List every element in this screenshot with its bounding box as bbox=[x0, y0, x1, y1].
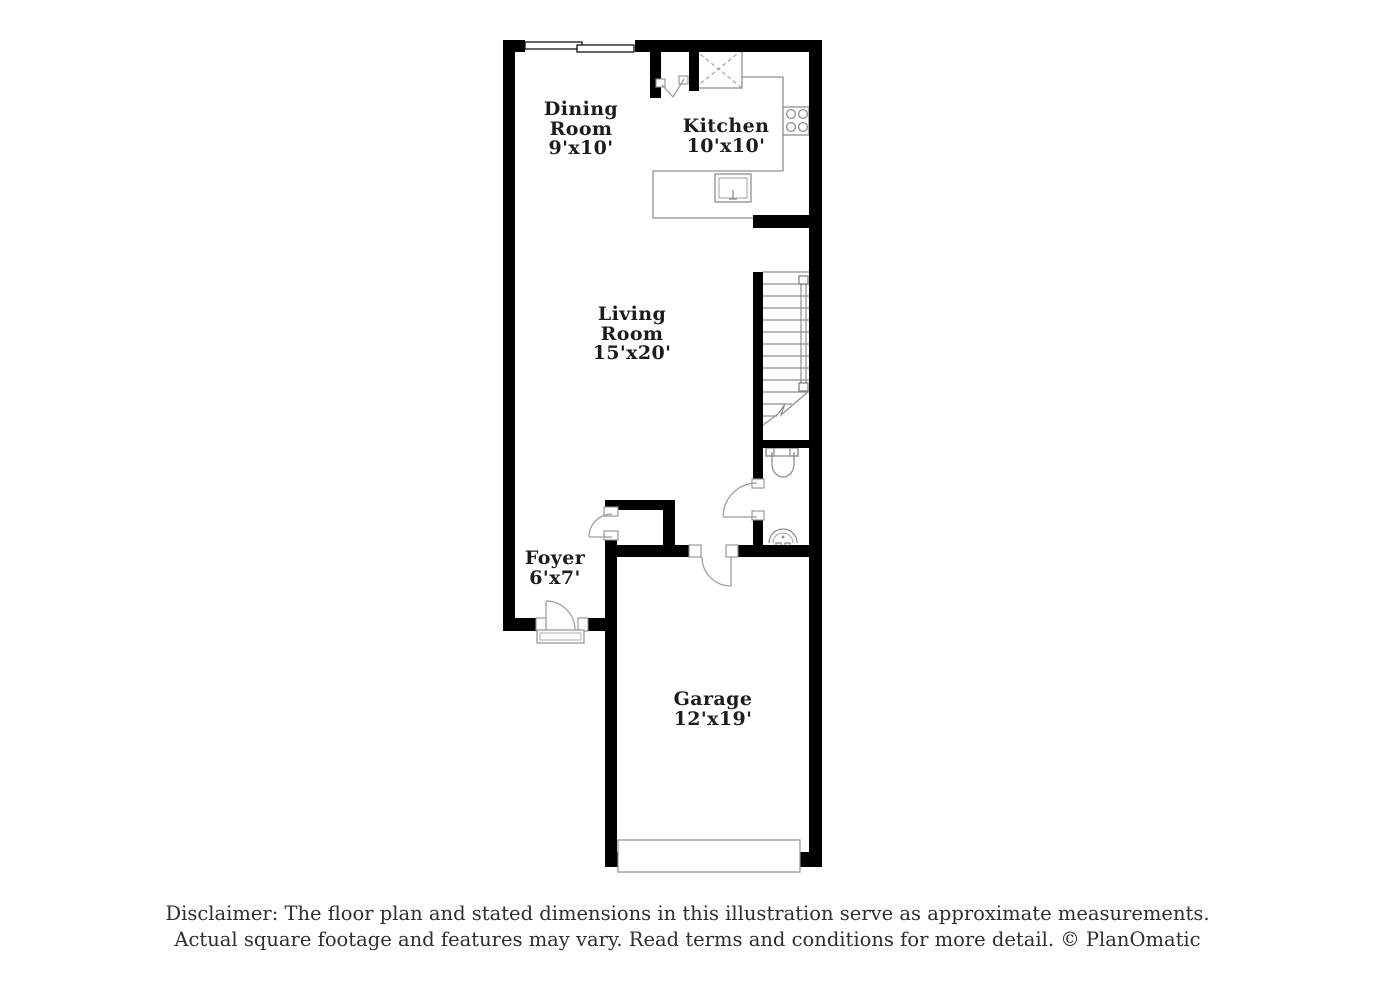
wall-top bbox=[635, 40, 822, 52]
jamb bbox=[726, 545, 738, 557]
room-label-living: Living Room 15'x20' bbox=[587, 305, 677, 364]
jamb bbox=[604, 531, 618, 540]
wall-left bbox=[503, 40, 515, 631]
stair-railing-cap bbox=[799, 383, 808, 391]
powder-room-fixtures bbox=[766, 448, 798, 548]
wall-garage-left bbox=[605, 542, 617, 867]
toilet-icon bbox=[766, 448, 798, 456]
wall-garage-bottom-left bbox=[605, 852, 618, 867]
room-label-garage: Garage 12'x19' bbox=[653, 690, 773, 729]
room-dims: 9'x10' bbox=[536, 139, 626, 159]
jamb bbox=[689, 545, 701, 557]
wall-dining-kitchen-stub bbox=[650, 52, 661, 98]
wall-powder-top bbox=[763, 440, 809, 448]
window-pane-icon bbox=[525, 42, 582, 49]
front-door-icon bbox=[546, 601, 575, 630]
floorplan-canvas: Dining Room 9'x10' Kitchen 10'x10' Livin… bbox=[0, 0, 1375, 1000]
wall-garage-bottom-right bbox=[800, 852, 822, 867]
window-pane-icon bbox=[577, 45, 634, 52]
jamb bbox=[656, 79, 665, 87]
room-name: Foyer bbox=[505, 549, 605, 569]
wall-closet-right bbox=[663, 500, 675, 557]
front-door-threshold bbox=[540, 633, 581, 640]
garage-door-icon bbox=[618, 840, 800, 872]
room-name: Garage bbox=[653, 690, 773, 710]
disclaimer-line-1: Disclaimer: The floor plan and stated di… bbox=[0, 901, 1375, 927]
wall-kitchen-stub bbox=[689, 52, 699, 91]
openings bbox=[537, 630, 800, 872]
room-name: Living Room bbox=[587, 305, 677, 344]
room-dims: 6'x7' bbox=[505, 569, 605, 589]
room-dims: 15'x20' bbox=[587, 344, 677, 364]
wall-hall-bottom-left bbox=[605, 545, 700, 557]
staircase bbox=[763, 272, 809, 425]
disclaimer-text: Disclaimer: The floor plan and stated di… bbox=[0, 901, 1375, 953]
jamb bbox=[536, 618, 546, 631]
room-label-kitchen: Kitchen 10'x10' bbox=[656, 117, 796, 156]
wall-stair-left-upper bbox=[753, 272, 763, 487]
room-name: Kitchen bbox=[656, 117, 796, 137]
wall-kitchen-bottom bbox=[753, 215, 813, 228]
room-dims: 12'x19' bbox=[653, 710, 773, 730]
room-name: Dining Room bbox=[536, 100, 626, 139]
disclaimer-line-2: Actual square footage and features may v… bbox=[0, 927, 1375, 953]
stair-break-line bbox=[763, 391, 809, 425]
room-dims: 10'x10' bbox=[656, 137, 796, 157]
jamb bbox=[578, 618, 588, 631]
wall-right bbox=[809, 40, 822, 867]
garage-entry-door-icon bbox=[702, 557, 731, 586]
jamb bbox=[752, 511, 764, 520]
wall-hall-bottom-right bbox=[727, 545, 809, 557]
stair-railing-cap bbox=[799, 276, 808, 284]
room-label-dining: Dining Room 9'x10' bbox=[536, 100, 626, 159]
pedestal-sink-icon bbox=[782, 536, 785, 539]
window bbox=[525, 42, 634, 52]
room-label-foyer: Foyer 6'x7' bbox=[505, 549, 605, 588]
